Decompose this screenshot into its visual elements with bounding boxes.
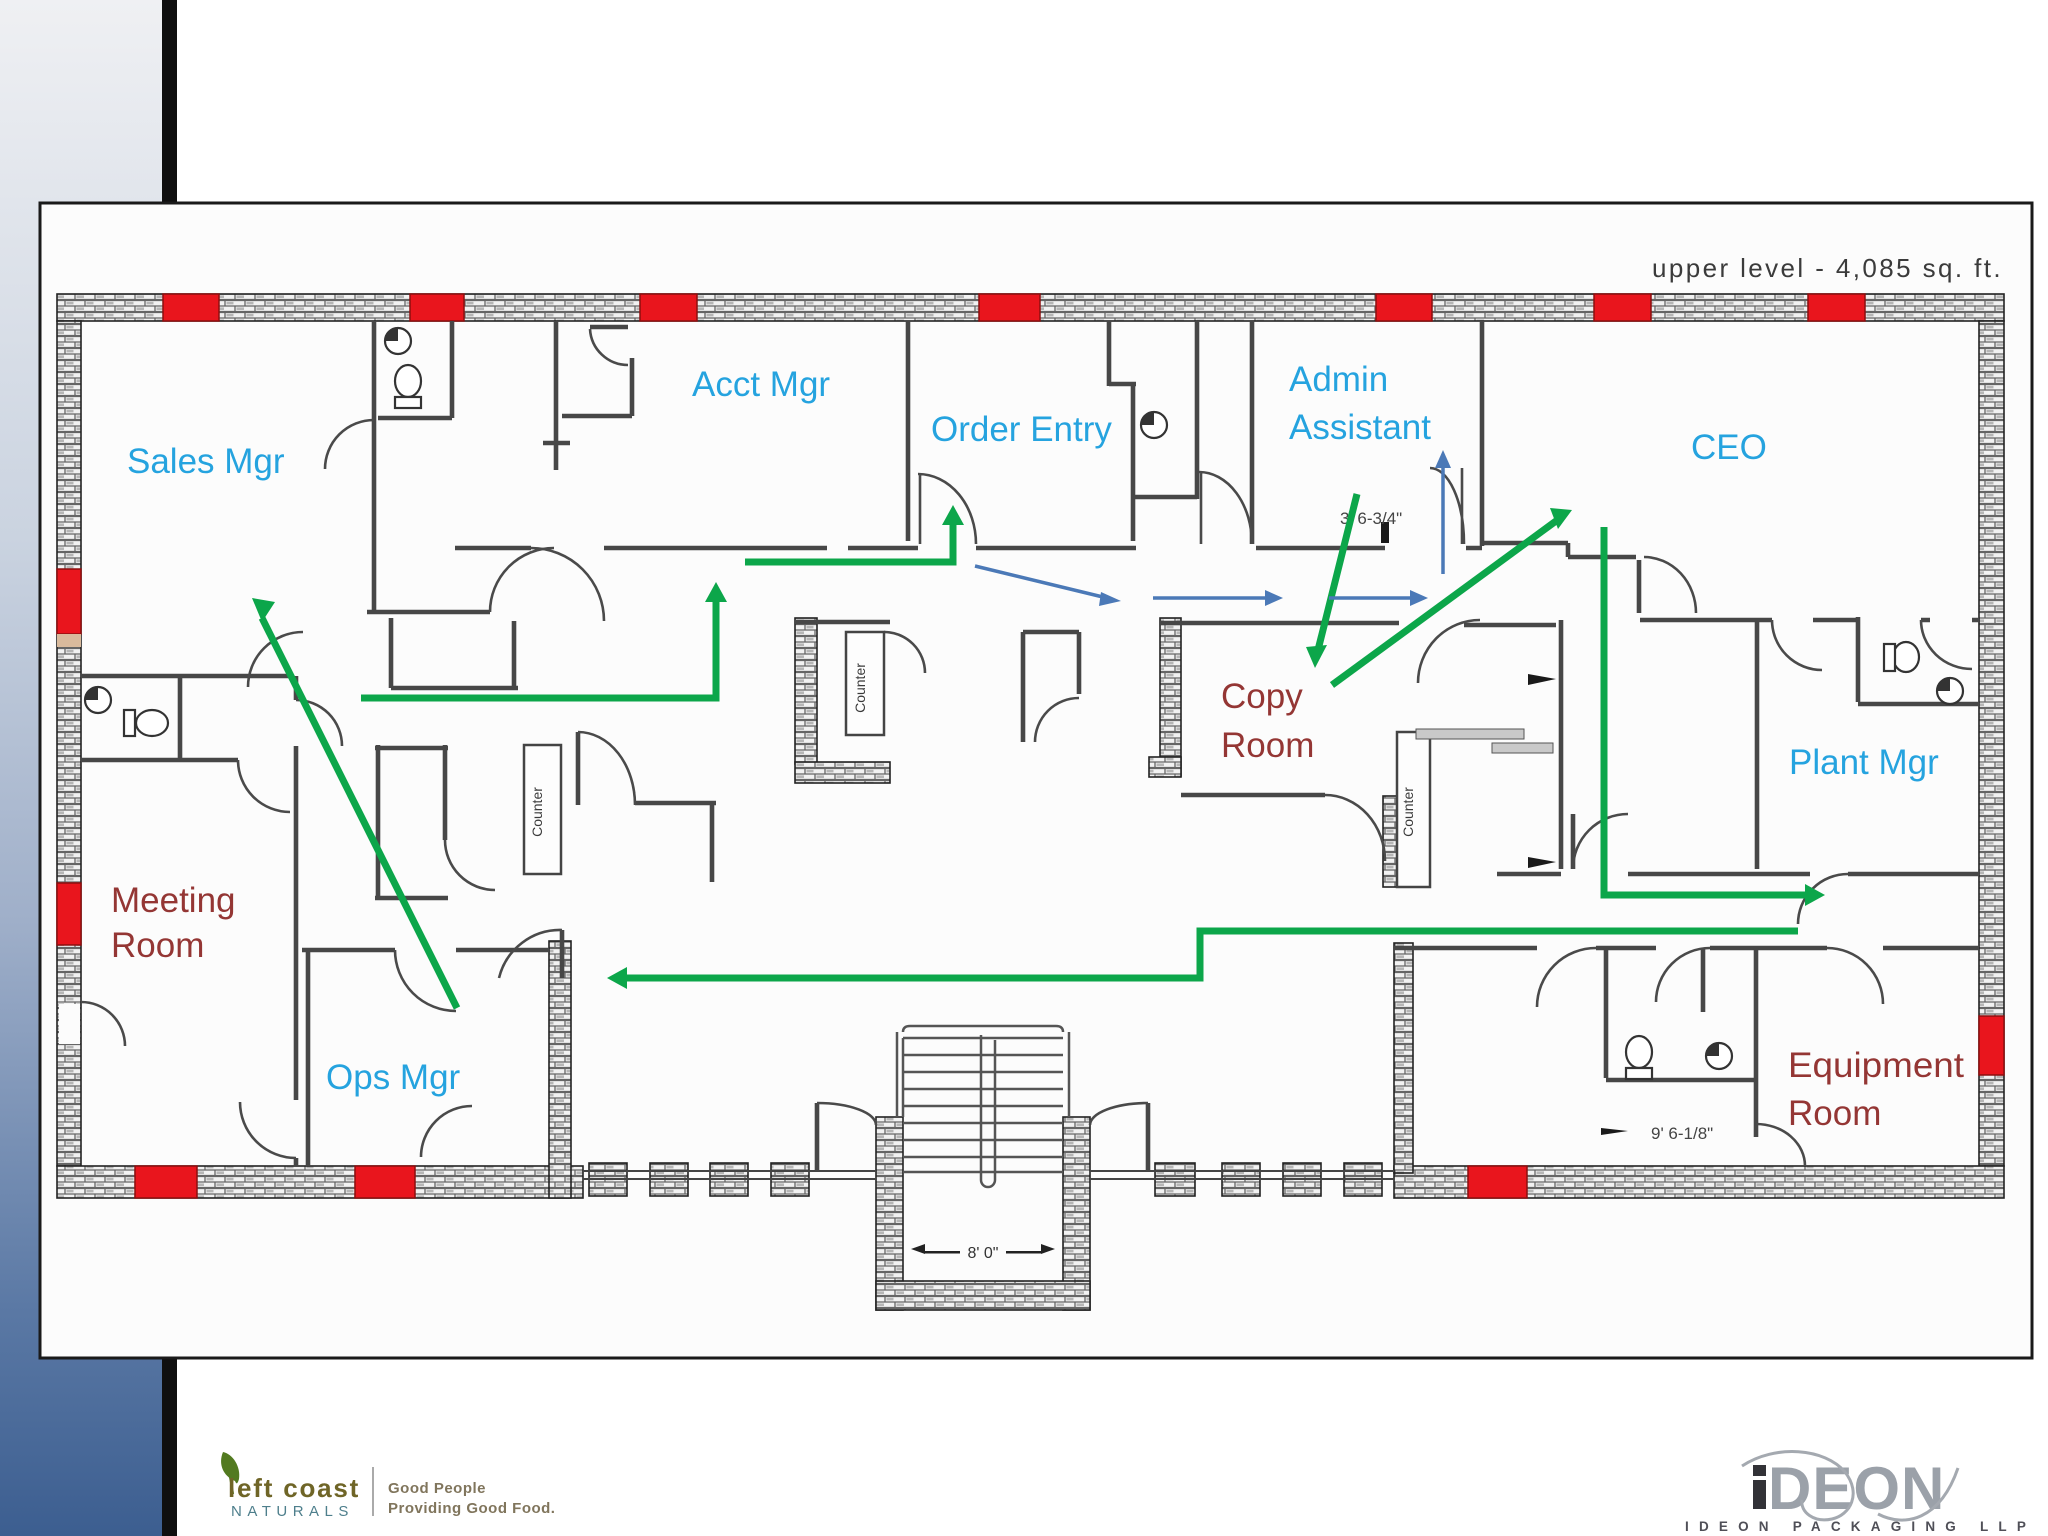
svg-text:Room: Room [111, 926, 204, 965]
svg-text:Providing Good Food.: Providing Good Food. [388, 1500, 555, 1517]
svg-text:Order Entry: Order Entry [931, 410, 1112, 449]
svg-text:Copy: Copy [1221, 677, 1303, 716]
svg-text:IDEON PACKAGING LLP: IDEON PACKAGING LLP [1685, 1519, 2036, 1534]
svg-text:Counter: Counter [529, 787, 545, 837]
svg-text:8' 0": 8' 0" [968, 1245, 999, 1262]
svg-text:Room: Room [1221, 726, 1314, 765]
svg-text:Equipment: Equipment [1788, 1046, 1964, 1085]
svg-text:DEON: DEON [1768, 1455, 1945, 1522]
svg-text:Assistant: Assistant [1289, 408, 1431, 447]
svg-text:CEO: CEO [1691, 428, 1767, 467]
svg-text:9' 6-1/8": 9' 6-1/8" [1651, 1124, 1713, 1143]
svg-text:NATURALS: NATURALS [231, 1503, 354, 1520]
svg-text:Ops Mgr: Ops Mgr [326, 1058, 461, 1097]
svg-text:Admin: Admin [1289, 360, 1388, 399]
svg-text:Counter: Counter [852, 663, 868, 713]
svg-text:Room: Room [1788, 1094, 1881, 1133]
svg-text:Acct Mgr: Acct Mgr [692, 365, 830, 404]
svg-text:Counter: Counter [1400, 787, 1416, 837]
svg-text:left coast: left coast [228, 1473, 360, 1503]
svg-text:upper level - 4,085 sq. ft.: upper level - 4,085 sq. ft. [1652, 253, 2003, 283]
svg-text:Good People: Good People [388, 1480, 486, 1497]
svg-text:Sales Mgr: Sales Mgr [127, 442, 285, 481]
svg-text:Plant Mgr: Plant Mgr [1789, 743, 1939, 782]
svg-text:Meeting: Meeting [111, 881, 236, 920]
